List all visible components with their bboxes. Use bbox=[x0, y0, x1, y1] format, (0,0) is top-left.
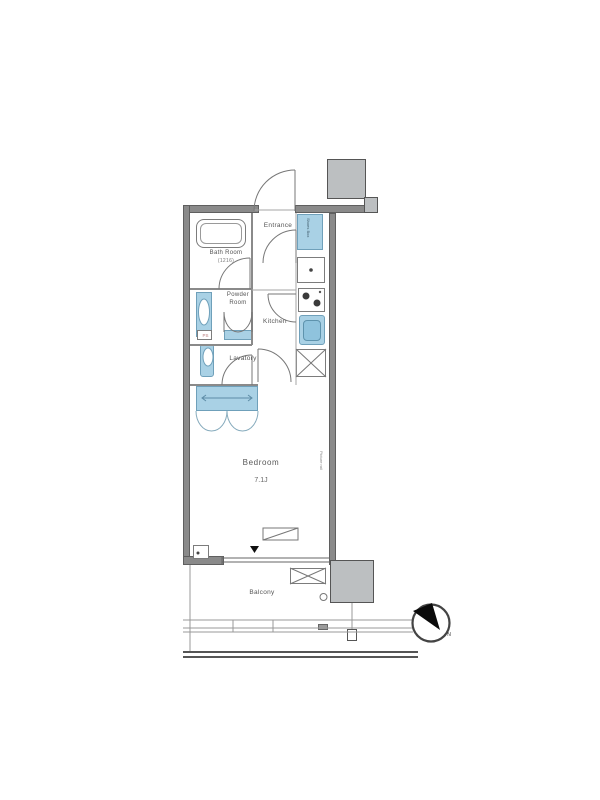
wall-left bbox=[183, 205, 190, 565]
bedroom-label: Bedroom bbox=[229, 458, 293, 468]
bedroom-size-label: 7.1J bbox=[229, 477, 293, 486]
window-marker-triangle bbox=[250, 546, 259, 553]
bathroom-label: Bath Room (1216) bbox=[202, 250, 250, 265]
closet-folding-doors bbox=[196, 411, 258, 431]
shoes-box-label: Shoes Box bbox=[306, 218, 311, 237]
plan-linework bbox=[0, 0, 600, 800]
floorplan-canvas: Shoes Box PS bbox=[0, 0, 600, 800]
entrance-storage bbox=[297, 257, 325, 283]
picture-rail-label: Picture rail bbox=[319, 444, 324, 476]
stove bbox=[298, 288, 325, 312]
balcony-edge-lines bbox=[183, 652, 418, 657]
entrance-door-arc bbox=[254, 170, 295, 211]
bedroom-corner-unit bbox=[193, 545, 209, 559]
powder-room-label: Powder Room bbox=[220, 292, 256, 307]
drain-box bbox=[347, 629, 357, 641]
drain-circle bbox=[320, 594, 327, 601]
shaft-step-top bbox=[364, 197, 378, 213]
entrance-label: Entrance bbox=[258, 222, 298, 230]
shoes-box: Shoes Box bbox=[297, 214, 323, 250]
kitchen-label: Kitchen bbox=[263, 318, 297, 326]
powder-cabinet-doors bbox=[224, 312, 252, 332]
pipe-space-label: PS bbox=[198, 333, 213, 339]
sliding-sash bbox=[263, 528, 298, 540]
railing-fitting bbox=[318, 624, 328, 630]
evacuation-hatch bbox=[290, 568, 326, 584]
wall-right bbox=[329, 213, 336, 565]
shaft-block-bottom bbox=[330, 560, 374, 603]
balcony-label: Balcony bbox=[230, 589, 294, 597]
pipe-space-box: PS bbox=[197, 330, 212, 340]
closet bbox=[196, 386, 258, 411]
compass-north-label: N bbox=[444, 632, 454, 638]
hall-door-arc bbox=[263, 230, 296, 263]
shaft-block-top bbox=[327, 159, 366, 199]
lavatory-label: Lavatory bbox=[224, 355, 262, 363]
wall-top-left bbox=[183, 205, 259, 213]
bathtub bbox=[196, 219, 246, 248]
bedroom-door-arc bbox=[258, 349, 291, 382]
refrigerator-space bbox=[296, 349, 326, 377]
powder-counter bbox=[224, 330, 253, 340]
kitchen-sink bbox=[299, 315, 325, 345]
window-lines bbox=[222, 556, 330, 564]
bathroom-label-text: Bath Room bbox=[210, 250, 243, 256]
bathroom-size-text: (1216) bbox=[218, 258, 234, 264]
toilet bbox=[200, 344, 214, 377]
